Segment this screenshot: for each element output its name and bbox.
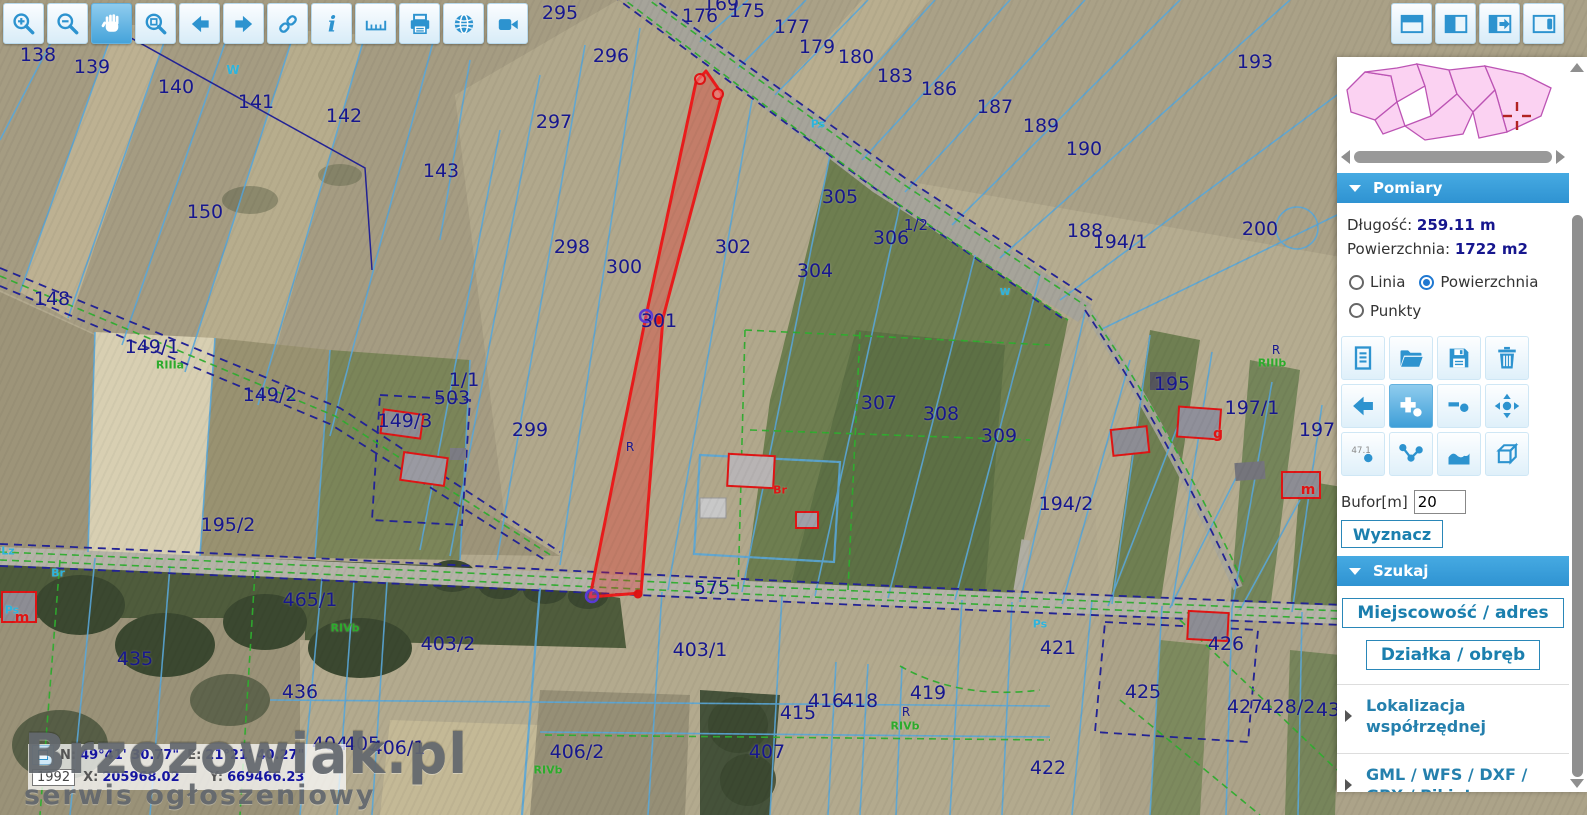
e-label: E:	[187, 748, 201, 763]
map-label: 150	[187, 201, 223, 223]
map-label: 149/3	[378, 410, 433, 432]
map-label: 194/2	[1039, 493, 1094, 515]
radio-label: Linia	[1370, 269, 1405, 295]
map-label: 143	[423, 160, 459, 182]
map-label: 307	[861, 392, 897, 414]
map-label: m	[15, 610, 30, 626]
radio-powierzchnia[interactable]: Powierzchnia	[1419, 269, 1538, 295]
length-label: Długość:	[1347, 216, 1412, 234]
overview-hscrollbar[interactable]	[1341, 149, 1565, 165]
map-application: 138139140141142143150148149/1149/2149/31…	[0, 0, 1587, 815]
zoom-extent-button[interactable]	[135, 3, 176, 44]
measure-toolgrid: 47.1	[1337, 326, 1569, 476]
map-label: 200	[1242, 218, 1278, 240]
buffer-row: Bufor[m]	[1337, 476, 1569, 514]
sidebar-panel: Pomiary Długość: 259.11 m Powierzchnia: …	[1337, 57, 1587, 792]
map-label: 177	[774, 16, 810, 38]
map-label: 422	[1030, 757, 1066, 779]
section-title: Pomiary	[1373, 179, 1442, 197]
open-folder-button[interactable]	[1389, 336, 1433, 380]
buffer-label: Bufor[m]	[1341, 493, 1408, 511]
map-label: 575	[694, 577, 730, 599]
measure-mode-radios: LiniaPowierzchnia Punkty	[1337, 261, 1569, 326]
panel-left-button[interactable]	[1435, 3, 1476, 44]
n-label: N:	[60, 748, 76, 763]
radio-icon	[1419, 275, 1434, 290]
map-label: 189	[1023, 115, 1059, 137]
forward-button[interactable]	[223, 3, 264, 44]
map-label: 195	[1154, 373, 1190, 395]
print-button[interactable]	[399, 3, 440, 44]
expand-item-label: Lokalizacja współrzędnej	[1366, 695, 1516, 737]
map-label: 503	[434, 387, 470, 409]
map-label: 297	[536, 111, 572, 133]
chevron-right-icon	[1345, 710, 1352, 722]
panel-expand-button[interactable]	[1479, 3, 1520, 44]
radio-linia[interactable]: Linia	[1349, 269, 1405, 295]
map-label: 175	[729, 0, 765, 22]
map-label: 435	[117, 648, 153, 670]
map-label: 140	[158, 76, 194, 98]
pan-button[interactable]	[91, 3, 132, 44]
map-label: 190	[1066, 138, 1102, 160]
radio-label: Punkty	[1370, 298, 1421, 324]
radio-icon	[1349, 275, 1364, 290]
sidebar-vscrollbar[interactable]	[1570, 57, 1585, 792]
map-label: R	[902, 705, 910, 719]
delete-button[interactable]	[1485, 336, 1529, 380]
coordinate-tool-button[interactable]	[32, 745, 54, 765]
zoom-in-button[interactable]	[3, 3, 44, 44]
scroll-left-icon[interactable]	[1341, 150, 1350, 164]
map-label: R	[626, 440, 634, 454]
map-label: 197/1	[1225, 397, 1280, 419]
expand-item-label: GML / WFS / DXF / GPX / Pikiety	[1366, 764, 1551, 792]
map-label: 296	[593, 45, 629, 67]
undo-button[interactable]	[1341, 384, 1385, 428]
map-label: Br	[51, 567, 65, 580]
new-document-button[interactable]	[1341, 336, 1385, 380]
measure-button[interactable]	[355, 3, 396, 44]
save-button[interactable]	[1437, 336, 1481, 380]
map-label: 465/1	[283, 589, 338, 611]
section-header-pomiary[interactable]: Pomiary	[1337, 173, 1569, 203]
map-label: 1/2	[904, 216, 928, 234]
map-label: 186	[921, 78, 957, 100]
overview-map[interactable]	[1345, 60, 1561, 146]
chevron-right-icon	[1345, 779, 1352, 791]
map-label: Ps	[811, 118, 825, 131]
map-label: w	[999, 284, 1010, 298]
map-label: 138	[20, 44, 56, 66]
map-label: 298	[554, 236, 590, 258]
map-label: 416	[808, 690, 844, 712]
n-value: 49°41' 30.77"	[80, 748, 179, 763]
wyznacz-button[interactable]: Wyznacz	[1341, 520, 1443, 548]
map-label: 305	[822, 186, 858, 208]
map-label: 197	[1299, 419, 1335, 441]
layout-toolbar	[1391, 3, 1564, 44]
map-label: 302	[715, 236, 751, 258]
panel-top-button[interactable]	[1391, 3, 1432, 44]
map-label: 187	[977, 96, 1013, 118]
map-label: m	[1301, 482, 1316, 498]
y-label: Y:	[210, 770, 223, 785]
map-label: 139	[74, 56, 110, 78]
map-label: g	[1213, 426, 1223, 442]
map-label: 194/1	[1093, 231, 1148, 253]
radio-label: Powierzchnia	[1440, 269, 1538, 295]
dzialka-obreb-button[interactable]: Działka / obręb	[1366, 640, 1540, 670]
miejscowosc-adres-button[interactable]: Miejscowość / adres	[1342, 598, 1563, 628]
map-label: 149/2	[243, 384, 298, 406]
map-label: 406/2	[550, 741, 605, 763]
section-title: Szukaj	[1373, 562, 1428, 580]
main-toolbar: i	[3, 3, 528, 44]
panel-right-button[interactable]	[1523, 3, 1564, 44]
map-label: 419	[910, 682, 946, 704]
map-label: 295	[542, 2, 578, 24]
map-label: Br	[773, 484, 787, 497]
poland-regions	[1347, 64, 1551, 140]
zoom-out-button[interactable]	[47, 3, 88, 44]
map-label: W	[226, 63, 239, 77]
map-label: 407	[749, 741, 785, 763]
map-label: 309	[981, 425, 1017, 447]
crs-select[interactable]: 1992	[32, 769, 75, 786]
map-label: 141	[238, 91, 274, 113]
scroll-down-icon[interactable]	[1570, 779, 1584, 788]
map-label: 300	[606, 256, 642, 278]
map-label: 176	[682, 5, 718, 27]
map-label: 299	[512, 419, 548, 441]
buffer-input[interactable]	[1414, 490, 1466, 514]
area-value: 1722 m2	[1455, 240, 1528, 258]
length-value: 259.11 m	[1417, 216, 1496, 234]
measurement-readout: Długość: 259.11 m Powierzchnia: 1722 m2	[1337, 203, 1569, 261]
expand-gml-wfs[interactable]: GML / WFS / DXF / GPX / Pikiety	[1337, 753, 1569, 792]
x-label: X:	[83, 770, 98, 785]
coordinate-statusbar: N: 49°41' 30.77" E: 21°21' 40.27" 1992 X…	[28, 744, 346, 790]
globe-button[interactable]	[443, 3, 484, 44]
link-button[interactable]	[267, 3, 308, 44]
map-label: 183	[877, 65, 913, 87]
map-label: 428/2	[1261, 696, 1316, 718]
map-label: 179	[799, 36, 835, 58]
map-label: 418	[842, 690, 878, 712]
map-label: RIVb	[331, 622, 360, 635]
map-label: 403/1	[673, 639, 728, 661]
info-button[interactable]: i	[311, 3, 352, 44]
map-label: 148	[34, 288, 70, 310]
map-label: 149/1	[125, 336, 180, 358]
map-label: Lz	[1, 545, 14, 558]
polyline-button[interactable]	[1389, 432, 1433, 476]
show-values-button[interactable]: 47.1	[1341, 432, 1385, 476]
map-label: R	[1272, 343, 1280, 357]
scroll-up-icon[interactable]	[1570, 63, 1584, 72]
map-label: 406/1	[371, 737, 426, 759]
map-label: RIVb	[534, 764, 563, 777]
map-label: 426	[1208, 633, 1244, 655]
vscroll-thumb[interactable]	[1572, 215, 1583, 777]
remove-point-button[interactable]	[1437, 384, 1481, 428]
y-value: 669466.23	[227, 770, 304, 785]
radio-punkty[interactable]: Punkty	[1349, 298, 1421, 324]
map-label: Ps	[1033, 618, 1047, 631]
section-header-szukaj[interactable]: Szukaj	[1337, 556, 1569, 586]
map-label: 301	[641, 310, 677, 332]
profile-button[interactable]	[1437, 432, 1481, 476]
radio-icon	[1349, 303, 1364, 318]
map-label: 421	[1040, 637, 1076, 659]
expand-lokalizacja[interactable]: Lokalizacja współrzędnej	[1337, 684, 1569, 739]
svg-text:i: i	[327, 12, 335, 36]
map-label: 304	[797, 260, 833, 282]
crosshair-icon	[38, 750, 48, 760]
area-label: Powierzchnia:	[1347, 240, 1450, 258]
add-point-button[interactable]	[1389, 384, 1433, 428]
hscroll-thumb[interactable]	[1354, 151, 1552, 163]
chevron-down-icon	[1349, 185, 1361, 192]
map-label: 142	[326, 105, 362, 127]
map-label: RIVb	[891, 720, 920, 733]
map-label: 195/2	[201, 514, 256, 536]
map-label: 308	[923, 403, 959, 425]
x-value: 205968.02	[102, 770, 179, 785]
camera-button[interactable]	[487, 3, 528, 44]
move-point-button[interactable]	[1485, 384, 1529, 428]
map-label: RIIIb	[1258, 357, 1287, 370]
map-label: RIIIa	[156, 359, 184, 372]
map-label: 180	[838, 46, 874, 68]
map-label: 427	[1227, 696, 1263, 718]
3d-button[interactable]	[1485, 432, 1529, 476]
scroll-right-icon[interactable]	[1556, 150, 1565, 164]
chevron-down-icon	[1349, 568, 1361, 575]
e-value: 21°21' 40.27"	[205, 748, 304, 763]
map-label: 436	[282, 681, 318, 703]
map-label: 425	[1125, 681, 1161, 703]
map-label: 193	[1237, 51, 1273, 73]
map-label: 403/2	[421, 633, 476, 655]
back-button[interactable]	[179, 3, 220, 44]
